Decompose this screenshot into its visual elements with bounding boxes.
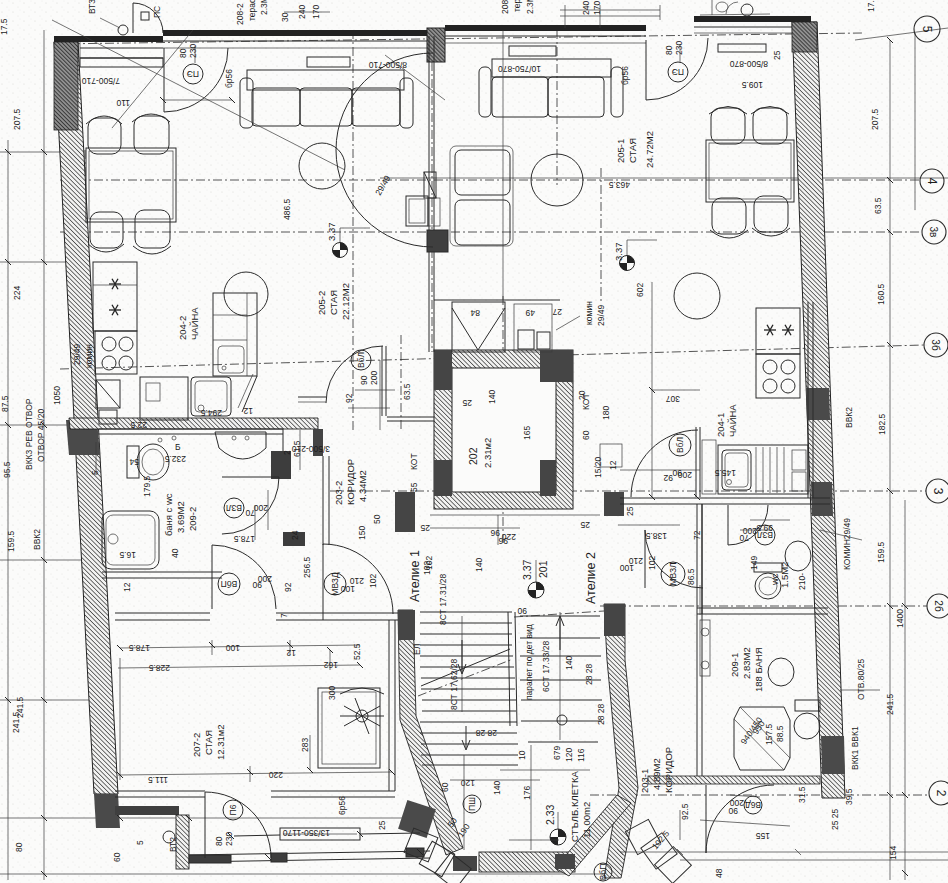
svg-text:баня с wc: баня с wc [163, 493, 174, 536]
svg-text:25: 25 [625, 506, 635, 516]
svg-text:160.5: 160.5 [876, 283, 886, 305]
svg-text:парапет по дет вид: парапет по дет вид [524, 624, 534, 700]
svg-text:92: 92 [283, 582, 293, 592]
svg-text:ПС: ПС [152, 6, 162, 18]
svg-text:159.5: 159.5 [876, 541, 886, 563]
svg-text:ВЗЛ: ВЗЛ [226, 503, 242, 513]
svg-text:178.5: 178.5 [233, 534, 255, 544]
svg-text:209-1: 209-1 [729, 653, 740, 677]
svg-text:3в: 3в [928, 227, 939, 238]
svg-text:17.5: 17.5 [0, 18, 9, 35]
svg-text:200: 200 [678, 470, 692, 480]
svg-text:207.5: 207.5 [12, 108, 22, 130]
svg-text:22.12М2: 22.12М2 [340, 283, 351, 320]
svg-text:230: 230 [674, 41, 684, 55]
svg-text:102: 102 [368, 574, 378, 588]
svg-text:679: 679 [552, 746, 562, 760]
svg-text:П6: П6 [228, 804, 238, 815]
svg-text:145.5: 145.5 [714, 468, 736, 478]
svg-text:СТАЯ: СТАЯ [627, 138, 638, 163]
svg-text:25: 25 [462, 398, 472, 408]
svg-text:25: 25 [772, 50, 782, 60]
svg-text:КОРИДОР: КОРИДОР [663, 747, 674, 793]
svg-text:80: 80 [178, 48, 188, 58]
svg-text:102: 102 [424, 556, 434, 570]
svg-text:комин: комин [84, 344, 94, 368]
svg-text:29/49: 29/49 [596, 304, 606, 326]
svg-text:92: 92 [663, 473, 673, 483]
svg-text:96: 96 [490, 528, 500, 538]
svg-text:Ателие 2: Ателие 2 [584, 552, 598, 604]
svg-text:200: 200 [730, 798, 744, 808]
svg-text:28 28: 28 28 [596, 703, 606, 725]
svg-text:бр56: бр56 [620, 66, 630, 85]
svg-text:80: 80 [214, 836, 224, 846]
svg-text:В6Д: В6Д [745, 800, 761, 810]
svg-text:12: 12 [286, 648, 296, 658]
svg-text:Б: Б [175, 442, 181, 452]
svg-text:228.5: 228.5 [148, 663, 170, 673]
svg-text:109.5: 109.5 [741, 80, 763, 90]
svg-text:ОТВОР 45/20: ОТВОР 45/20 [36, 409, 46, 462]
svg-text:5: 5 [135, 840, 145, 845]
svg-text:205-1: 205-1 [615, 139, 626, 163]
svg-text:140: 140 [564, 656, 574, 670]
svg-text:110: 110 [116, 98, 130, 108]
svg-text:ОТВ.80/25: ОТВ.80/25 [856, 659, 866, 700]
svg-text:188 БАНЯ: 188 БАНЯ [753, 647, 764, 692]
svg-text:2: 2 [934, 790, 948, 797]
svg-text:ВВК2: ВВК2 [32, 529, 42, 550]
svg-text:220: 220 [502, 532, 516, 542]
svg-text:25 25: 25 25 [830, 808, 840, 830]
svg-text:99.5: 99.5 [756, 523, 773, 533]
svg-text:25: 25 [580, 520, 590, 530]
svg-text:25: 25 [377, 820, 387, 830]
svg-text:3.37: 3.37 [521, 559, 533, 580]
svg-text:29/49: 29/49 [72, 343, 82, 365]
svg-text:55: 55 [409, 482, 419, 492]
svg-text:2: 2 [282, 450, 292, 455]
svg-text:209-2: 209-2 [187, 507, 198, 531]
svg-text:120: 120 [564, 748, 574, 762]
svg-text:7: 7 [279, 613, 289, 618]
svg-text:ВТ2: ВТ2 [168, 837, 178, 852]
svg-text:140: 140 [474, 558, 484, 572]
svg-text:40: 40 [170, 548, 180, 558]
svg-text:31.5: 31.5 [797, 786, 807, 803]
svg-text:149: 149 [749, 556, 759, 570]
svg-text:92.5: 92.5 [680, 803, 690, 820]
svg-text:300: 300 [327, 686, 337, 700]
svg-text:6р56: 6р56 [337, 796, 347, 815]
svg-text:84: 84 [470, 308, 480, 318]
svg-text:204-2: 204-2 [177, 316, 188, 340]
svg-text:54: 54 [129, 457, 139, 467]
svg-text:138.5: 138.5 [645, 531, 667, 541]
svg-text:2.3М: 2.3М [259, 0, 269, 15]
svg-text:ПЭ: ПЭ [672, 67, 684, 77]
svg-text:111.5: 111.5 [148, 775, 168, 785]
svg-text:210-: 210- [797, 573, 807, 590]
svg-text:176: 176 [522, 786, 532, 800]
svg-text:27: 27 [552, 307, 562, 317]
svg-text:ВбЛ: ВбЛ [356, 352, 366, 368]
svg-text:ВКК1 ВВК1: ВКК1 ВВК1 [850, 726, 860, 770]
svg-text:ПШ: ПШ [467, 797, 477, 811]
svg-text:6СТ 17.33/28: 6СТ 17.33/28 [541, 641, 551, 692]
svg-text:3.69М2: 3.69М2 [175, 501, 186, 533]
svg-text:5: 5 [920, 26, 934, 33]
svg-text:182.5: 182.5 [877, 413, 887, 435]
svg-text:80: 80 [664, 45, 674, 55]
svg-text:КОТ: КОТ [409, 453, 419, 470]
svg-text:49: 49 [525, 308, 535, 318]
svg-text:28 28: 28 28 [584, 663, 594, 685]
svg-text:8/500-710: 8/500-710 [368, 60, 407, 70]
svg-text:203-1: 203-1 [639, 769, 650, 793]
svg-text:ВКК3 РЕВ ОТВОР: ВКК3 РЕВ ОТВОР [24, 398, 34, 470]
svg-text:СТАЯ: СТАЯ [203, 730, 214, 755]
svg-text:60: 60 [581, 430, 591, 440]
svg-text:2.33: 2.33 [544, 804, 556, 825]
svg-text:3.37: 3.37 [613, 243, 624, 262]
svg-text:179.5: 179.5 [142, 475, 152, 497]
svg-text:102: 102 [647, 556, 657, 570]
svg-text:63.5: 63.5 [873, 197, 883, 214]
svg-text:170: 170 [592, 1, 602, 15]
svg-text:24.72М2: 24.72М2 [644, 131, 655, 168]
svg-text:200: 200 [258, 574, 272, 584]
svg-text:294.5: 294.5 [200, 408, 222, 418]
svg-text:100: 100 [226, 643, 240, 653]
svg-text:210: 210 [350, 576, 364, 586]
svg-text:бр56: бр56 [224, 69, 234, 88]
svg-text:207-2: 207-2 [191, 733, 202, 757]
svg-text:ВбП: ВбП [221, 579, 238, 589]
svg-text:39.5: 39.5 [844, 788, 854, 805]
svg-text:210: 210 [629, 556, 643, 566]
svg-text:1050: 1050 [52, 386, 62, 405]
svg-text:4.89М2: 4.89М2 [651, 758, 662, 790]
svg-text:204-1: 204-1 [715, 413, 726, 437]
svg-text:140: 140 [487, 390, 497, 404]
svg-text:7/500-710: 7/500-710 [81, 76, 120, 86]
svg-text:208-2: 208-2 [500, 0, 510, 14]
svg-text:150: 150 [357, 526, 367, 540]
svg-text:ЧАЙНА: ЧАЙНА [189, 307, 200, 340]
svg-text:307: 307 [666, 394, 680, 404]
svg-text:СТАЯ: СТАЯ [328, 290, 339, 315]
svg-text:1.5М2: 1.5М2 [779, 562, 790, 588]
svg-text:86.5: 86.5 [686, 568, 696, 585]
svg-text:88.5: 88.5 [775, 725, 785, 742]
svg-text:4: 4 [925, 178, 939, 185]
svg-text:17.5: 17.5 [866, 0, 876, 12]
svg-text:90: 90 [359, 375, 369, 385]
svg-text:90: 90 [517, 606, 527, 616]
svg-text:11.00m2: 11.00m2 [581, 802, 592, 838]
svg-text:602: 602 [635, 283, 645, 297]
svg-text:12.31м2: 12.31м2 [215, 724, 226, 760]
svg-text:80: 80 [14, 842, 24, 852]
svg-text:165: 165 [522, 426, 532, 440]
svg-text:3.37: 3.37 [326, 223, 337, 242]
svg-text:60: 60 [112, 852, 122, 862]
svg-text:202: 202 [467, 447, 479, 465]
svg-text:13/350-1170: 13/350-1170 [283, 828, 330, 838]
svg-text:8/500-870: 8/500-870 [729, 59, 768, 69]
svg-text:155: 155 [756, 831, 770, 841]
svg-text:МВЗЛ: МВЗЛ [668, 562, 678, 585]
svg-text:230: 230 [188, 44, 198, 58]
svg-text:12: 12 [608, 460, 618, 470]
svg-text:50: 50 [372, 514, 382, 524]
svg-text:52.5: 52.5 [352, 643, 362, 660]
svg-text:256.5: 256.5 [302, 556, 312, 578]
svg-text:200: 200 [369, 371, 379, 385]
svg-text:15/20: 15/20 [593, 456, 603, 478]
svg-text:Ателие 1: Ателие 1 [408, 550, 422, 602]
svg-text:16.5: 16.5 [119, 550, 136, 560]
svg-text:22.5: 22.5 [130, 420, 147, 430]
svg-text:159.5: 159.5 [6, 530, 16, 552]
svg-text:207.5: 207.5 [870, 108, 880, 130]
svg-text:208-2: 208-2 [235, 3, 245, 25]
svg-text:МВЗД: МВЗД [330, 572, 340, 596]
svg-text:283: 283 [300, 738, 310, 752]
svg-text:241.5: 241.5 [15, 696, 25, 718]
svg-text:комин: комин [584, 301, 594, 325]
svg-text:1400: 1400 [895, 609, 905, 628]
svg-text:205-2: 205-2 [316, 291, 327, 315]
svg-text:10/750-870: 10/750-870 [498, 64, 541, 74]
svg-text:30: 30 [280, 12, 290, 22]
svg-text:КОМИН29/49: КОМИН29/49 [842, 518, 852, 570]
svg-text:201: 201 [537, 560, 549, 578]
svg-text:180: 180 [601, 406, 611, 420]
svg-text:тераса: тераса [247, 0, 257, 21]
svg-text:ВВК2: ВВК2 [844, 407, 854, 428]
svg-text:463.5: 463.5 [608, 180, 630, 190]
svg-text:48: 48 [714, 868, 724, 878]
svg-text:63.5: 63.5 [402, 383, 412, 400]
svg-text:СТЪЛБ.КЛЕТКА: СТЪЛБ.КЛЕТКА [569, 771, 580, 842]
svg-text:60: 60 [440, 782, 450, 792]
svg-text:157.5: 157.5 [764, 723, 774, 745]
svg-text:200: 200 [743, 526, 757, 536]
svg-text:140: 140 [492, 781, 502, 795]
svg-text:20: 20 [577, 390, 587, 400]
svg-text:224: 224 [12, 286, 22, 300]
svg-text:3б: 3б [930, 339, 941, 351]
svg-text:2.83М2: 2.83М2 [741, 647, 752, 679]
svg-text:3: 3 [931, 488, 945, 495]
svg-text:241.5: 241.5 [885, 693, 895, 715]
svg-text:ЧАЙНА: ЧАЙНА [727, 404, 738, 437]
svg-text:240: 240 [581, 1, 591, 15]
svg-text:232.5: 232.5 [164, 454, 186, 464]
svg-text:12: 12 [122, 582, 132, 592]
svg-text:116: 116 [576, 748, 586, 762]
svg-text:ВбЛ: ВбЛ [675, 437, 685, 453]
svg-text:25: 25 [420, 523, 430, 533]
svg-text:3/500-210: 3/500-210 [291, 444, 330, 454]
svg-text:КОРИДОР: КОРИДОР [345, 459, 356, 505]
svg-text:72: 72 [692, 530, 702, 540]
svg-text:10: 10 [517, 750, 527, 760]
svg-text:95.5: 95.5 [2, 461, 12, 478]
svg-text:2б: 2б [933, 600, 944, 612]
svg-text:ЕЛ: ЕЛ [412, 644, 422, 655]
svg-text:220: 220 [269, 770, 283, 780]
svg-text:ВбП: ВбП [598, 864, 608, 881]
svg-text:8СТ 17.31/28: 8СТ 17.31/28 [438, 574, 448, 625]
svg-text:8СТ 17.62/28: 8СТ 17.62/28 [449, 659, 459, 710]
svg-text:2.3М: 2.3М [525, 0, 535, 14]
svg-text:тер: тер [512, 0, 522, 12]
svg-text:28 28: 28 28 [475, 728, 497, 738]
svg-text:ВТ3: ВТ3 [87, 0, 97, 14]
svg-text:120: 120 [461, 778, 475, 788]
svg-text:2.31м2: 2.31м2 [482, 438, 493, 468]
svg-text:5: 5 [90, 470, 100, 475]
svg-text:70: 70 [245, 508, 255, 518]
svg-text:200: 200 [254, 503, 268, 513]
svg-text:87.5: 87.5 [0, 395, 10, 412]
svg-text:486.5: 486.5 [282, 198, 292, 220]
svg-text:4.34М2: 4.34М2 [357, 470, 368, 502]
svg-text:ПЭ: ПЭ [187, 69, 199, 79]
svg-text:24: 24 [290, 530, 300, 540]
svg-text:154: 154 [888, 846, 898, 860]
svg-text:12: 12 [243, 406, 253, 416]
svg-text:203-2: 203-2 [333, 481, 344, 505]
svg-text:92: 92 [344, 393, 354, 403]
